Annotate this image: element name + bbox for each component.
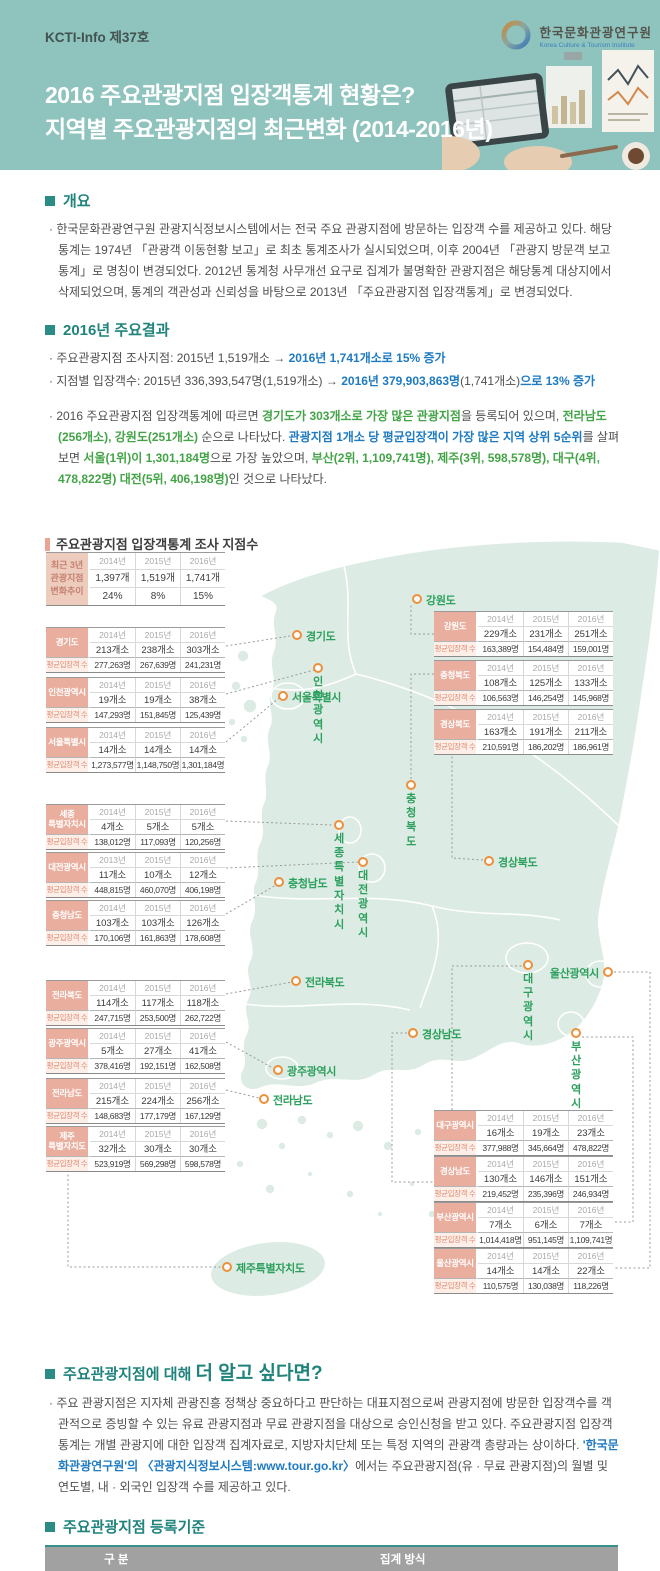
- map-label-text: 경상남도: [422, 1026, 461, 1042]
- count-cell: 130개소: [478, 1171, 523, 1186]
- avg-visitors-cell: 951,145명: [523, 1232, 568, 1247]
- year-cell: 2015년: [135, 853, 180, 867]
- avg-visitors-label-cell: 평균입장객 수: [46, 930, 90, 945]
- region-table-gangwon: 강원도 2014년 2015년 2016년 229개소 231개소 251개소 …: [434, 611, 613, 657]
- avg-visitors-cell: 1,014,418명: [478, 1232, 523, 1247]
- year-cell: 2015년: [135, 1029, 180, 1043]
- avg-visitors-cell: 569,298명: [135, 1156, 180, 1171]
- count-cell: 191개소: [523, 724, 568, 739]
- avg-visitors-cell: 118,226명: [568, 1278, 613, 1293]
- avg-visitors-cell: 159,001명: [568, 641, 613, 656]
- count-cell: 5개소: [90, 1043, 135, 1058]
- avg-visitors-label-cell: 평균입장객 수: [434, 739, 478, 754]
- avg-visitors-label-cell: 평균입장객 수: [46, 757, 90, 772]
- avg-visitors-cell: 167,129명: [180, 1108, 225, 1123]
- count-cell: 23개소: [568, 1125, 613, 1140]
- count-cell: 238개소: [135, 642, 180, 657]
- year-cell: 2014년: [90, 553, 135, 569]
- avg-visitors-cell: 1,301,184명: [180, 757, 225, 772]
- map-label-text: 강원도: [426, 592, 455, 608]
- avg-visitors-cell: 253,500명: [135, 1010, 180, 1025]
- avg-visitors-cell: 262,722명: [180, 1010, 225, 1025]
- year-cell: 2016년: [180, 805, 225, 819]
- count-cell: 211개소: [568, 724, 613, 739]
- count-cell: 213개소: [90, 642, 135, 657]
- count-cell: 4개소: [90, 819, 135, 834]
- avg-visitors-label-cell: 평균입장객 수: [434, 1278, 478, 1293]
- avg-visitors-cell: 120,256명: [180, 834, 225, 849]
- year-cell: 2014년: [478, 710, 523, 724]
- avg-visitors-label-cell: 평균입장객 수: [46, 1010, 90, 1025]
- region-name-cell: 경상북도: [434, 710, 478, 739]
- count-cell: 7개소: [478, 1217, 523, 1232]
- location-marker-icon: [274, 877, 284, 887]
- avg-visitors-cell: 154,484명: [523, 641, 568, 656]
- year-cell: 2015년: [135, 1127, 180, 1141]
- location-marker-icon: [412, 594, 422, 604]
- criteria-col2-header: 집계 방식: [188, 1546, 619, 1571]
- region-name-cell: 경상남도: [434, 1157, 478, 1186]
- summary-table-label: 최근 3년 관광지점 변화추이: [46, 553, 90, 605]
- year-cell: 2016년: [180, 901, 225, 915]
- more-info-section: 주요관광지점에 대해 더 알고 싶다면? · 주요 관광지점은 지자체 관광진흥…: [0, 1358, 660, 1498]
- year-cell: 2016년: [568, 661, 613, 675]
- year-cell: 2015년: [135, 805, 180, 819]
- region-table-chungbuk: 충청북도 2014년 2015년 2016년 108개소 125개소 133개소…: [434, 660, 613, 706]
- year-cell: 2015년: [523, 1157, 568, 1171]
- year-cell: 2016년: [180, 728, 225, 742]
- count-cell: 19개소: [523, 1125, 568, 1140]
- count-cell: 16개소: [478, 1125, 523, 1140]
- avg-visitors-cell: 246,934명: [568, 1186, 613, 1201]
- count-cell: 229개소: [478, 626, 523, 641]
- org-logo: 한국문화관광연구원 Korea Culture & Tourism Instit…: [499, 18, 652, 52]
- region-table-gyeongbuk: 경상북도 2014년 2015년 2016년 163개소 191개소 211개소…: [434, 709, 613, 755]
- region-name-cell: 울산광역시: [434, 1249, 478, 1278]
- avg-visitors-cell: 117,093명: [135, 834, 180, 849]
- avg-visitors-cell: 106,563명: [478, 690, 523, 705]
- count-cell: 19개소: [135, 692, 180, 707]
- avg-visitors-cell: 186,961명: [568, 739, 613, 754]
- location-marker-icon: [313, 663, 323, 673]
- avg-visitors-cell: 178,608명: [180, 930, 225, 945]
- year-cell: 2015년: [135, 728, 180, 742]
- results-line2: · 지점별 입장객수: 2015년 336,393,547명(1,519개소) …: [45, 371, 620, 391]
- year-cell: 2016년: [180, 628, 225, 642]
- count-cell: 146개소: [523, 1171, 568, 1186]
- avg-visitors-cell: 192,151명: [135, 1058, 180, 1073]
- more-info-body: · 주요 관광지점은 지자체 관광진흥 정책상 중요하다고 판단하는 대표지점으…: [45, 1393, 620, 1498]
- summary-table: 최근 3년 관광지점 변화추이 2014년 2015년 2016년 1,397개…: [46, 552, 225, 606]
- criteria-col1-header: 구 분: [45, 1546, 188, 1571]
- avg-visitors-label-cell: 평균입장객 수: [434, 1140, 478, 1155]
- region-table-gwangju: 광주광역시 2014년 2015년 2016년 5개소 27개소 41개소 평균…: [46, 1028, 225, 1074]
- logo-name-en: Korea Culture & Tourism Institute: [539, 42, 652, 49]
- avg-visitors-cell: 151,845명: [135, 707, 180, 722]
- location-marker-icon: [292, 630, 302, 640]
- region-table-daejeon: 대전광역시 2013년 2015년 2016년 11개소 10개소 12개소 평…: [46, 852, 225, 898]
- avg-visitors-cell: 478,822명: [568, 1140, 613, 1155]
- avg-visitors-label-cell: 평균입장객 수: [434, 1232, 478, 1247]
- region-table-seoul: 서울특별시 2014년 2015년 2016년 14개소 14개소 14개소 평…: [46, 727, 225, 773]
- count-cell: 6개소: [523, 1217, 568, 1232]
- year-cell: 2015년: [135, 678, 180, 692]
- map-label-text: 경기도: [306, 628, 335, 644]
- count-cell: 14개소: [523, 1263, 568, 1278]
- region-table-gyeongnam: 경상남도 2014년 2015년 2016년 130개소 146개소 151개소…: [434, 1156, 613, 1202]
- count-cell: 22개소: [568, 1263, 613, 1278]
- region-table-jeonbuk: 전라북도 2014년 2015년 2016년 114개소 117개소 118개소…: [46, 980, 225, 1026]
- survey-heading: 주요관광지점 입장객통계 조사 지점수: [45, 534, 258, 553]
- title-line1: 2016 주요관광지점 입장객통계 현황은?: [45, 78, 492, 112]
- count-cell: 5개소: [135, 819, 180, 834]
- year-cell: 2015년: [135, 628, 180, 642]
- avg-visitors-cell: 219,452명: [478, 1186, 523, 1201]
- count-cell: 224개소: [135, 1093, 180, 1108]
- count-cell: 14개소: [478, 1263, 523, 1278]
- avg-visitors-label-cell: 평균입장객 수: [46, 657, 90, 672]
- count-cell: 108개소: [478, 675, 523, 690]
- avg-visitors-cell: 406,198명: [180, 882, 225, 897]
- location-marker-icon: [406, 780, 416, 790]
- square-bullet-icon: [45, 1522, 55, 1532]
- issue-label: KCTI-Info 제37호: [45, 26, 149, 46]
- avg-visitors-label-cell: 평균입장객 수: [434, 641, 478, 656]
- location-marker-icon: [222, 1262, 232, 1272]
- bar-bullet-icon: [45, 538, 50, 551]
- avg-visitors-cell: 148,683명: [90, 1108, 135, 1123]
- map-label-text: 경상북도: [498, 854, 537, 870]
- year-cell: 2015년: [523, 1249, 568, 1263]
- avg-visitors-cell: 523,919명: [90, 1156, 135, 1171]
- avg-visitors-cell: 145,968명: [568, 690, 613, 705]
- avg-visitors-cell: 247,715명: [90, 1010, 135, 1025]
- region-name-cell: 전라남도: [46, 1079, 90, 1108]
- location-marker-icon: [259, 1094, 269, 1104]
- avg-visitors-cell: 163,389명: [478, 641, 523, 656]
- avg-visitors-label-cell: 평균입장객 수: [434, 1186, 478, 1201]
- map-label-text: 부산광역시: [571, 1040, 581, 1111]
- location-marker-icon: [603, 967, 613, 977]
- count-cell: 215개소: [90, 1093, 135, 1108]
- count-cell: 133개소: [568, 675, 613, 690]
- location-marker-icon: [334, 820, 344, 830]
- avg-visitors-cell: 345,664명: [523, 1140, 568, 1155]
- year-cell: 2016년: [568, 1249, 613, 1263]
- count-cell: 11개소: [90, 867, 135, 882]
- region-table-busan: 부산광역시 2014년 2015년 2016년 7개소 6개소 7개소 평균입장…: [434, 1202, 613, 1248]
- results-para: · 2016 주요관광지점 입장객통계에 따르면 경기도가 303개소로 가장 …: [45, 406, 620, 490]
- avg-visitors-cell: 138,012명: [90, 834, 135, 849]
- count-cell: 103개소: [90, 915, 135, 930]
- results-heading: 2016년 주요결과: [45, 319, 620, 340]
- year-cell: 2016년: [180, 981, 225, 995]
- results-line1: · 주요관광지점 조사지점: 2015년 1,519개소 → 2016년 1,7…: [45, 348, 620, 368]
- count-cell: 114개소: [90, 995, 135, 1010]
- year-cell: 2013년: [90, 853, 135, 867]
- year-cell: 2016년: [180, 1127, 225, 1141]
- avg-visitors-cell: 377,988명: [478, 1140, 523, 1155]
- avg-visitors-cell: 125,439명: [180, 707, 225, 722]
- count-cell: 38개소: [180, 692, 225, 707]
- region-table-daegu: 대구광역시 2014년 2015년 2016년 16개소 19개소 23개소 평…: [434, 1110, 613, 1156]
- count-cell: 5개소: [180, 819, 225, 834]
- results-section: 2016년 주요결과 · 주요관광지점 조사지점: 2015년 1,519개소 …: [0, 319, 660, 490]
- year-cell: 2014년: [478, 1249, 523, 1263]
- avg-visitors-cell: 110,575명: [478, 1278, 523, 1293]
- year-cell: 2016년: [568, 1111, 613, 1125]
- avg-visitors-cell: 598,578명: [180, 1156, 225, 1171]
- count-cell: 14개소: [135, 742, 180, 757]
- region-table-incheon: 인천광역시 2014년 2015년 2016년 19개소 19개소 38개소 평…: [46, 677, 225, 723]
- region-table-sejong: 세종 특별자치시 2014년 2015년 2016년 4개소 5개소 5개소 평…: [46, 804, 225, 850]
- logo-ring-icon: [499, 18, 533, 52]
- year-cell: 2014년: [90, 1029, 135, 1043]
- overview-body: · 한국문화관광연구원 관광지식정보시스템에서는 전국 주요 관광지점에 방문하…: [45, 219, 620, 303]
- region-name-cell: 충청남도: [46, 901, 90, 930]
- year-cell: 2015년: [523, 661, 568, 675]
- page-title: 2016 주요관광지점 입장객통계 현황은? 지역별 주요관광지점의 최근변화 …: [45, 78, 492, 146]
- year-cell: 2014년: [478, 1111, 523, 1125]
- map-label-text: 대구광역시: [523, 972, 533, 1043]
- location-marker-icon: [358, 857, 368, 867]
- map-panel: 주요관광지점 입장객통계 조사 지점수: [0, 534, 660, 1334]
- location-marker-icon: [408, 1028, 418, 1038]
- count-cell: 125개소: [523, 675, 568, 690]
- location-marker-icon: [273, 1065, 283, 1075]
- region-name-cell: 인천광역시: [46, 678, 90, 707]
- avg-visitors-cell: 147,293명: [90, 707, 135, 722]
- criteria-table: 구 분 집계 방식 유료 관광지점 관광지점의 입장권 및 관람권 발권내역 등…: [45, 1545, 618, 1571]
- year-cell: 2015년: [523, 1203, 568, 1217]
- square-bullet-icon: [45, 325, 55, 335]
- avg-visitors-cell: 161,863명: [135, 930, 180, 945]
- count-cell: 1,519개: [135, 569, 180, 587]
- count-cell: 30개소: [135, 1141, 180, 1156]
- avg-visitors-cell: 460,070명: [135, 882, 180, 897]
- logo-name: 한국문화관광연구원: [539, 22, 652, 41]
- region-name-cell: 충청북도: [434, 661, 478, 690]
- avg-visitors-cell: 448,815명: [90, 882, 135, 897]
- year-cell: 2016년: [180, 1029, 225, 1043]
- count-cell: 10개소: [135, 867, 180, 882]
- year-cell: 2014년: [90, 628, 135, 642]
- count-cell: 27개소: [135, 1043, 180, 1058]
- count-cell: 19개소: [90, 692, 135, 707]
- region-name-cell: 부산광역시: [434, 1203, 478, 1232]
- count-cell: 151개소: [568, 1171, 613, 1186]
- avg-visitors-cell: 1,109,741명: [568, 1232, 613, 1247]
- count-cell: 103개소: [135, 915, 180, 930]
- map-label-text: 인천 광역시: [313, 675, 323, 746]
- avg-visitors-cell: 241,231명: [180, 657, 225, 672]
- year-cell: 2015년: [523, 1111, 568, 1125]
- change-cell: 8%: [135, 587, 180, 605]
- region-table-gyeonggi: 경기도 2014년 2015년 2016년 213개소 238개소 303개소 …: [46, 627, 225, 673]
- avg-visitors-cell: 267,639명: [135, 657, 180, 672]
- count-cell: 251개소: [568, 626, 613, 641]
- map-label-text: 세종 특별자치시: [334, 832, 344, 932]
- year-cell: 2014년: [90, 805, 135, 819]
- map-label-text: 서울특별시: [292, 689, 341, 705]
- avg-visitors-cell: 170,106명: [90, 930, 135, 945]
- map-label-text: 전라남도: [273, 1092, 312, 1108]
- year-cell: 2016년: [568, 612, 613, 626]
- location-marker-icon: [484, 856, 494, 866]
- avg-visitors-label-cell: 평균입장객 수: [434, 690, 478, 705]
- count-cell: 1,741개: [180, 569, 225, 587]
- year-cell: 2016년: [568, 710, 613, 724]
- count-cell: 32개소: [90, 1141, 135, 1156]
- region-name-cell: 광주광역시: [46, 1029, 90, 1058]
- location-marker-icon: [278, 691, 288, 701]
- avg-visitors-label-cell: 평균입장객 수: [46, 707, 90, 722]
- year-cell: 2016년: [180, 853, 225, 867]
- map-label-text: 울산광역시: [550, 965, 599, 981]
- criteria-heading: 주요관광지점 등록기준: [45, 1516, 620, 1537]
- year-cell: 2014년: [478, 612, 523, 626]
- year-cell: 2015년: [135, 1079, 180, 1093]
- year-cell: 2015년: [523, 710, 568, 724]
- year-cell: 2014년: [90, 728, 135, 742]
- map-label-text: 충청남도: [288, 875, 327, 891]
- map-label-text: 제주특별자치도: [236, 1260, 305, 1276]
- count-cell: 30개소: [180, 1141, 225, 1156]
- avg-visitors-cell: 277,263명: [90, 657, 135, 672]
- year-cell: 2015년: [523, 612, 568, 626]
- count-cell: 163개소: [478, 724, 523, 739]
- criteria-section: 주요관광지점 등록기준 구 분 집계 방식 유료 관광지점 관광지점의 입장권 …: [0, 1516, 660, 1571]
- overview-section: 개요 · 한국문화관광연구원 관광지식정보시스템에서는 전국 주요 관광지점에 …: [0, 190, 660, 303]
- avg-visitors-cell: 235,396명: [523, 1186, 568, 1201]
- avg-visitors-cell: 130,038명: [523, 1278, 568, 1293]
- avg-visitors-cell: 146,254명: [523, 690, 568, 705]
- count-cell: 12개소: [180, 867, 225, 882]
- count-cell: 303개소: [180, 642, 225, 657]
- year-cell: 2015년: [135, 901, 180, 915]
- overview-heading: 개요: [45, 190, 620, 211]
- avg-visitors-cell: 162,508명: [180, 1058, 225, 1073]
- avg-visitors-label-cell: 평균입장객 수: [46, 834, 90, 849]
- year-cell: 2014년: [90, 901, 135, 915]
- region-table-jeju: 제주 특별자치도 2014년 2015년 2016년 32개소 30개소 30개…: [46, 1126, 225, 1172]
- square-bullet-icon: [45, 1369, 55, 1379]
- square-bullet-icon: [45, 196, 55, 206]
- region-name-cell: 제주 특별자치도: [46, 1127, 90, 1156]
- banner: KCTI-Info 제37호 한국문화관광연구원 Korea Culture &…: [0, 0, 660, 170]
- year-cell: 2015년: [135, 981, 180, 995]
- count-cell: 231개소: [523, 626, 568, 641]
- avg-visitors-cell: 378,416명: [90, 1058, 135, 1073]
- region-name-cell: 대구광역시: [434, 1111, 478, 1140]
- year-cell: 2016년: [568, 1203, 613, 1217]
- year-cell: 2014년: [478, 1157, 523, 1171]
- avg-visitors-cell: 1,273,577명: [90, 757, 135, 772]
- count-cell: 118개소: [180, 995, 225, 1010]
- year-cell: 2016년: [568, 1157, 613, 1171]
- map-label-text: 전라북도: [305, 974, 344, 990]
- count-cell: 14개소: [180, 742, 225, 757]
- avg-visitors-label-cell: 평균입장객 수: [46, 1058, 90, 1073]
- map-label-text: 충청북도: [406, 792, 416, 849]
- year-cell: 2014년: [90, 1079, 135, 1093]
- region-name-cell: 세종 특별자치시: [46, 805, 90, 834]
- count-cell: 126개소: [180, 915, 225, 930]
- avg-visitors-cell: 186,202명: [523, 739, 568, 754]
- avg-visitors-label-cell: 평균입장객 수: [46, 1108, 90, 1123]
- more-info-heading: 주요관광지점에 대해 더 알고 싶다면?: [45, 1358, 620, 1385]
- region-table-chungnam: 충청남도 2014년 2015년 2016년 103개소 103개소 126개소…: [46, 900, 225, 946]
- avg-visitors-cell: 1,148,750명: [135, 757, 180, 772]
- year-cell: 2015년: [135, 553, 180, 569]
- region-name-cell: 경기도: [46, 628, 90, 657]
- region-name-cell: 전라북도: [46, 981, 90, 1010]
- avg-visitors-label-cell: 평균입장객 수: [46, 882, 90, 897]
- region-name-cell: 서울특별시: [46, 728, 90, 757]
- year-cell: 2014년: [90, 1127, 135, 1141]
- year-cell: 2016년: [180, 553, 225, 569]
- avg-visitors-label-cell: 평균입장객 수: [46, 1156, 90, 1171]
- year-cell: 2016년: [180, 678, 225, 692]
- count-cell: 256개소: [180, 1093, 225, 1108]
- year-cell: 2014년: [90, 678, 135, 692]
- change-cell: 24%: [90, 587, 135, 605]
- region-table-jeonnam: 전라남도 2014년 2015년 2016년 215개소 224개소 256개소…: [46, 1078, 225, 1124]
- avg-visitors-cell: 210,591명: [478, 739, 523, 754]
- count-cell: 1,397개: [90, 569, 135, 587]
- count-cell: 41개소: [180, 1043, 225, 1058]
- change-cell: 15%: [180, 587, 225, 605]
- count-cell: 7개소: [568, 1217, 613, 1232]
- location-marker-icon: [291, 976, 301, 986]
- map-label-text: 대전광역시: [358, 869, 368, 940]
- map-label-text: 광주광역시: [287, 1063, 336, 1079]
- count-cell: 117개소: [135, 995, 180, 1010]
- year-cell: 2014년: [90, 981, 135, 995]
- region-name-cell: 대전광역시: [46, 853, 90, 882]
- year-cell: 2014년: [478, 1203, 523, 1217]
- year-cell: 2016년: [180, 1079, 225, 1093]
- avg-visitors-cell: 177,179명: [135, 1108, 180, 1123]
- region-table-ulsan: 울산광역시 2014년 2015년 2016년 14개소 14개소 22개소 평…: [434, 1248, 613, 1294]
- region-name-cell: 강원도: [434, 612, 478, 641]
- location-marker-icon: [523, 960, 533, 970]
- count-cell: 14개소: [90, 742, 135, 757]
- year-cell: 2014년: [478, 661, 523, 675]
- title-line2: 지역별 주요관광지점의 최근변화 (2014-2016년): [45, 112, 492, 146]
- location-marker-icon: [571, 1028, 581, 1038]
